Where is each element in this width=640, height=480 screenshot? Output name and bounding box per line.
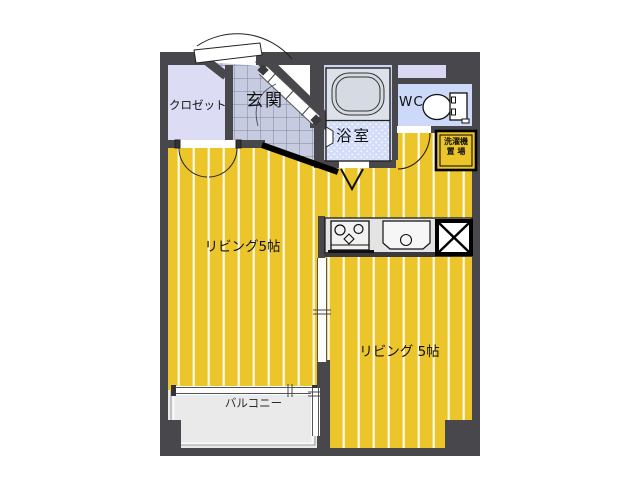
bathtub-icon bbox=[332, 73, 384, 115]
living-right-floor bbox=[322, 131, 472, 456]
bath-unit bbox=[326, 68, 390, 161]
floor-plan-drawing bbox=[0, 0, 640, 480]
washing-machine-label-line2: 置 場 bbox=[447, 147, 466, 156]
wc-label: WC bbox=[399, 95, 424, 110]
living-left-floor bbox=[167, 143, 322, 390]
bath-door-icon bbox=[326, 127, 333, 147]
floor-plan: クロゼット 玄関 浴室 WC 洗濯機 置 場 リビング5帖 リビング 5帖 バル… bbox=[0, 0, 640, 480]
kitchen-counter bbox=[325, 218, 472, 257]
washing-machine-label-line1: 洗濯機 bbox=[444, 137, 468, 146]
refrigerator-space-icon bbox=[437, 221, 471, 254]
entrance-label: 玄関 bbox=[246, 92, 284, 111]
pipe-space-band bbox=[398, 65, 446, 80]
living-right-label: リビング 5帖 bbox=[337, 345, 462, 360]
washing-machine-label: 洗濯機 置 場 bbox=[437, 137, 475, 157]
living-left-label: リビング5帖 bbox=[180, 240, 305, 255]
sink-icon bbox=[383, 221, 430, 249]
balcony-label: バルコニー bbox=[196, 397, 311, 410]
closet-label: クロゼット bbox=[169, 99, 225, 112]
bathroom-label: 浴室 bbox=[336, 128, 371, 145]
stove-icon bbox=[331, 221, 369, 250]
